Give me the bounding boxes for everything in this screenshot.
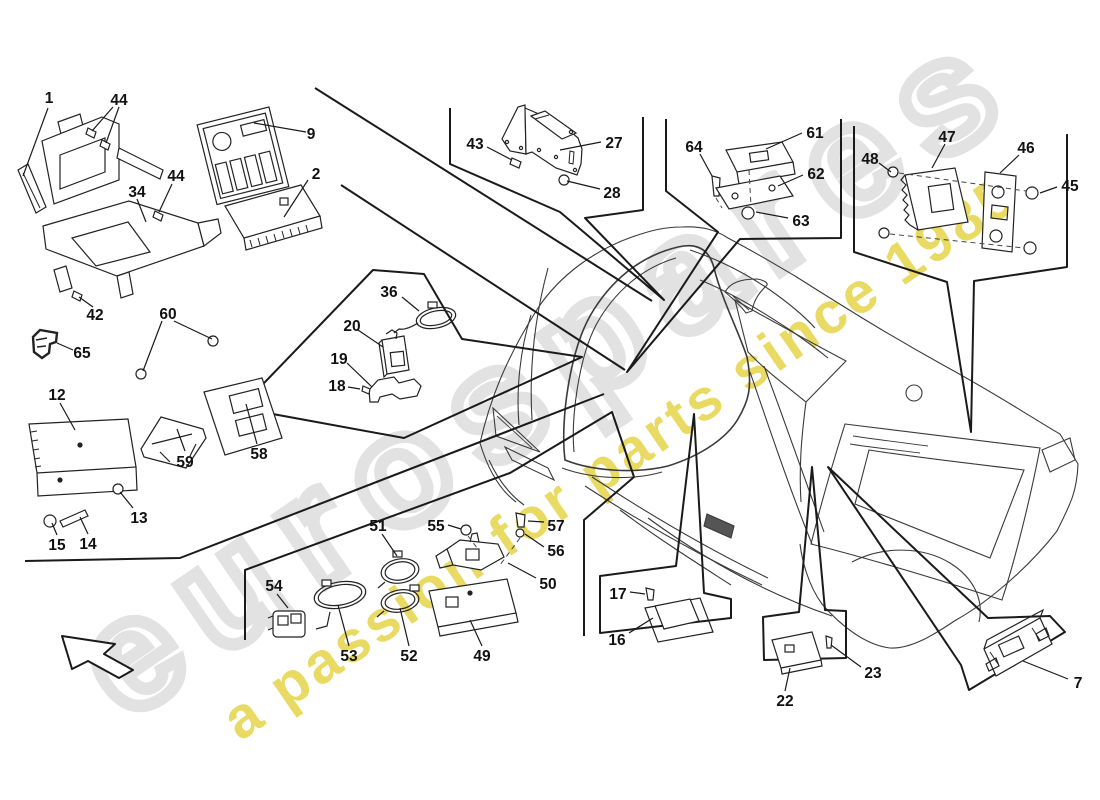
svg-text:43: 43 <box>466 136 484 153</box>
svg-text:7: 7 <box>1074 675 1083 692</box>
svg-text:65: 65 <box>73 345 91 362</box>
svg-text:16: 16 <box>608 632 626 649</box>
svg-text:55: 55 <box>427 518 445 535</box>
svg-text:62: 62 <box>807 166 824 183</box>
svg-text:12: 12 <box>48 387 65 404</box>
svg-text:22: 22 <box>776 693 793 710</box>
svg-text:63: 63 <box>792 213 810 230</box>
svg-text:53: 53 <box>340 648 358 665</box>
svg-text:61: 61 <box>806 125 824 142</box>
svg-text:9: 9 <box>307 126 316 143</box>
svg-text:15: 15 <box>48 537 66 554</box>
svg-text:56: 56 <box>547 543 565 560</box>
svg-text:45: 45 <box>1061 178 1079 195</box>
svg-text:23: 23 <box>864 665 882 682</box>
svg-text:42: 42 <box>86 307 103 324</box>
svg-text:54: 54 <box>265 578 283 595</box>
svg-text:1: 1 <box>45 90 54 107</box>
svg-text:36: 36 <box>380 284 398 301</box>
svg-text:51: 51 <box>369 518 387 535</box>
svg-text:50: 50 <box>539 576 556 593</box>
svg-text:64: 64 <box>685 139 703 156</box>
svg-text:49: 49 <box>473 648 491 665</box>
svg-text:57: 57 <box>547 518 564 535</box>
svg-text:48: 48 <box>861 151 879 168</box>
svg-text:58: 58 <box>250 446 268 463</box>
svg-text:28: 28 <box>603 185 621 202</box>
svg-text:19: 19 <box>330 351 348 368</box>
svg-text:2: 2 <box>312 166 321 183</box>
svg-text:13: 13 <box>130 510 148 527</box>
svg-text:60: 60 <box>159 306 176 323</box>
svg-text:20: 20 <box>343 318 360 335</box>
svg-text:18: 18 <box>328 378 346 395</box>
svg-text:34: 34 <box>128 184 146 201</box>
svg-text:17: 17 <box>609 586 626 603</box>
svg-text:59: 59 <box>176 454 194 471</box>
svg-text:14: 14 <box>79 536 97 553</box>
svg-text:44: 44 <box>167 168 185 185</box>
svg-text:46: 46 <box>1017 140 1035 157</box>
svg-text:27: 27 <box>605 135 622 152</box>
svg-text:44: 44 <box>110 92 128 109</box>
svg-text:47: 47 <box>938 129 955 146</box>
svg-text:52: 52 <box>400 648 417 665</box>
